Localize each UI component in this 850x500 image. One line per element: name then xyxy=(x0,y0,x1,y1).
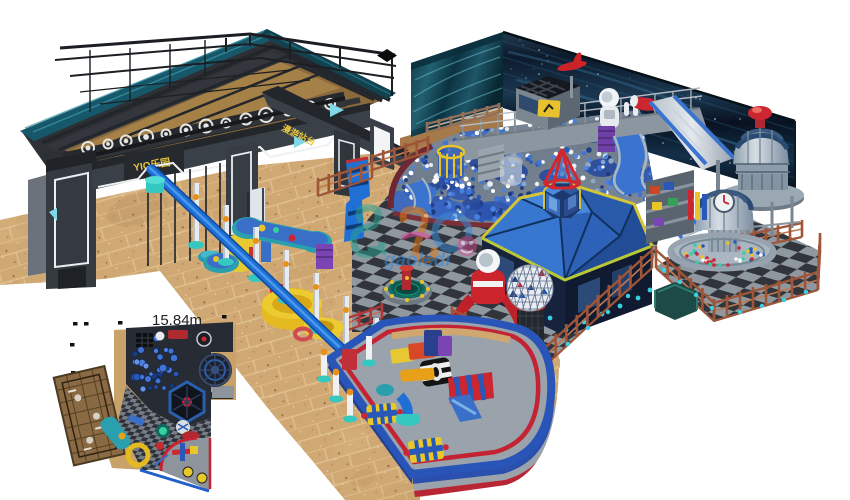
svg-text:gaoledi: gaoledi xyxy=(383,250,451,271)
